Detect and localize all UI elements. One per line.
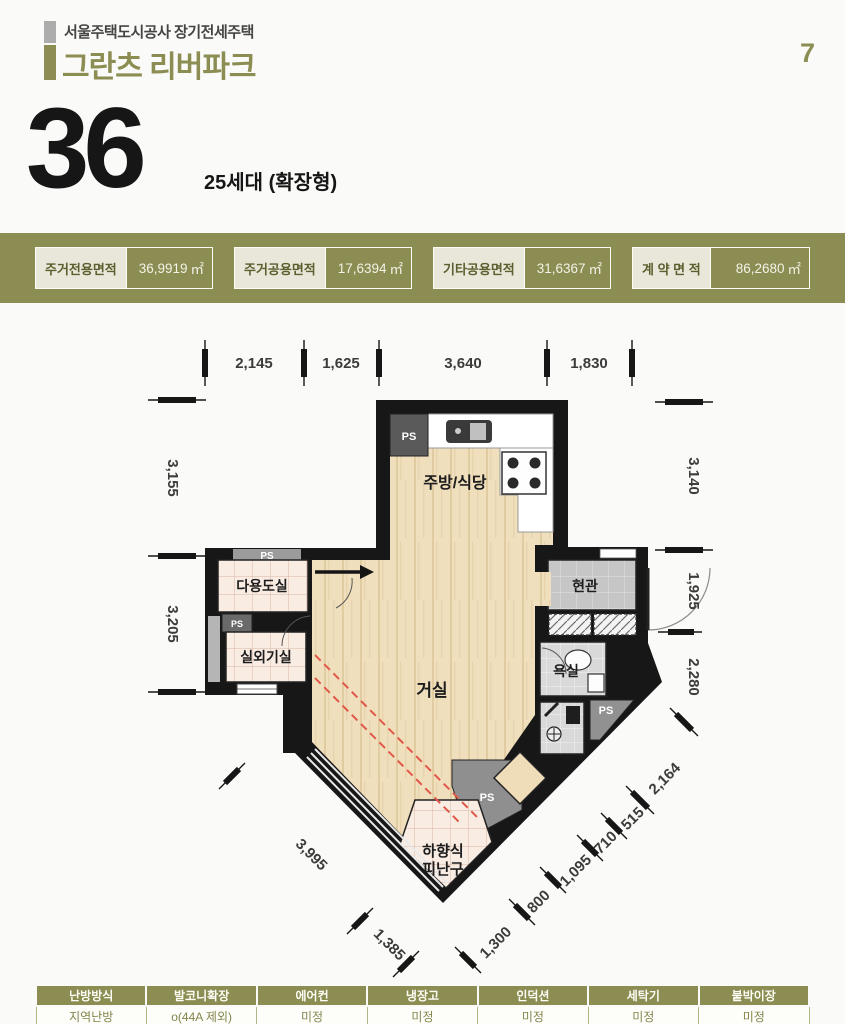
dim-right-3: 2,280	[685, 658, 702, 696]
dim-left-2: 3,205	[164, 605, 181, 643]
dim-br-3: 1,095	[557, 852, 596, 891]
room-label-kitchen: 주방/식당	[423, 474, 487, 492]
room-label-utility: 다용도실	[236, 578, 288, 594]
val-induction: 미정	[478, 1006, 588, 1024]
val-balcony: o(44A 제외)	[146, 1006, 256, 1024]
dim-left-1: 3,155	[164, 459, 181, 497]
val-fridge: 미정	[367, 1006, 477, 1024]
col-heating: 난방방식	[36, 985, 146, 1006]
col-balcony: 발코니확장	[146, 985, 256, 1006]
col-induction: 인덕션	[478, 985, 588, 1006]
stove-icon	[502, 452, 546, 494]
stove-burner	[508, 478, 519, 489]
col-aircon: 에어컨	[257, 985, 367, 1006]
sink-icon	[588, 674, 604, 692]
window-entrance	[600, 549, 636, 558]
dim-br-2: 800	[524, 887, 554, 917]
room-label-escape-2: 피난구	[422, 861, 464, 878]
ps-label: PS	[480, 792, 495, 804]
dim-top-4: 1,830	[570, 355, 608, 372]
room-label-outdoor-unit: 실외기실	[240, 649, 292, 665]
room-label-living: 거실	[416, 681, 447, 700]
fixture-block	[566, 706, 580, 724]
shoe-closet	[594, 614, 636, 635]
dim-bl-1: 3,995	[292, 836, 331, 875]
dim-top-1: 2,145	[235, 355, 273, 372]
ps-label: PS	[402, 431, 417, 443]
duct-strip	[208, 616, 220, 682]
ps-label: PS	[599, 705, 614, 717]
options-header-row: 난방방식 발코니확장 에어컨 냉장고 인덕션 세탁기 붙박이장	[36, 985, 809, 1006]
val-heating: 지역난방	[36, 1006, 146, 1024]
stove-burner	[508, 458, 519, 469]
dim-br-1: 1,300	[477, 924, 516, 963]
col-fridge: 냉장고	[367, 985, 477, 1006]
ps-label: PS	[231, 619, 243, 629]
stove-burner	[530, 458, 541, 469]
kitchen-faucet-icon	[455, 428, 461, 434]
stove-burner	[530, 478, 541, 489]
dim-bl-2: 1,385	[370, 926, 409, 965]
dim-br-5: 515	[618, 804, 648, 834]
brochure-page: 서울주택도시공사 장기전세주택 그란츠 리버파크 7 36 25세대 (확장형)…	[0, 0, 845, 1024]
dim-top-3: 3,640	[444, 355, 482, 372]
dim-top-2: 1,625	[322, 355, 360, 372]
shoe-closet	[549, 614, 591, 635]
room-label-entrance: 현관	[572, 578, 598, 594]
options-value-row: 지역난방 o(44A 제외) 미정 미정 미정 미정 미정	[36, 1006, 809, 1024]
dim-right-1: 3,140	[685, 457, 702, 495]
options-table: 난방방식 발코니확장 에어컨 냉장고 인덕션 세탁기 붙박이장 지역난방 o(4…	[35, 984, 810, 1024]
col-washer: 세탁기	[588, 985, 698, 1006]
kitchen-sink-basin	[470, 423, 486, 440]
room-label-escape-1: 하향식	[422, 843, 463, 860]
floorplan-drawing: PS PS PS PS PS	[0, 0, 845, 1024]
room-label-bathroom: 욕실	[553, 663, 579, 679]
val-washer: 미정	[588, 1006, 698, 1024]
dim-diag-right: 2,164	[646, 759, 685, 798]
col-closet: 붙박이장	[699, 985, 809, 1006]
opening-living-entrance	[533, 572, 551, 606]
val-closet: 미정	[699, 1006, 809, 1024]
dim-right-2: 1,925	[685, 572, 702, 610]
val-aircon: 미정	[257, 1006, 367, 1024]
